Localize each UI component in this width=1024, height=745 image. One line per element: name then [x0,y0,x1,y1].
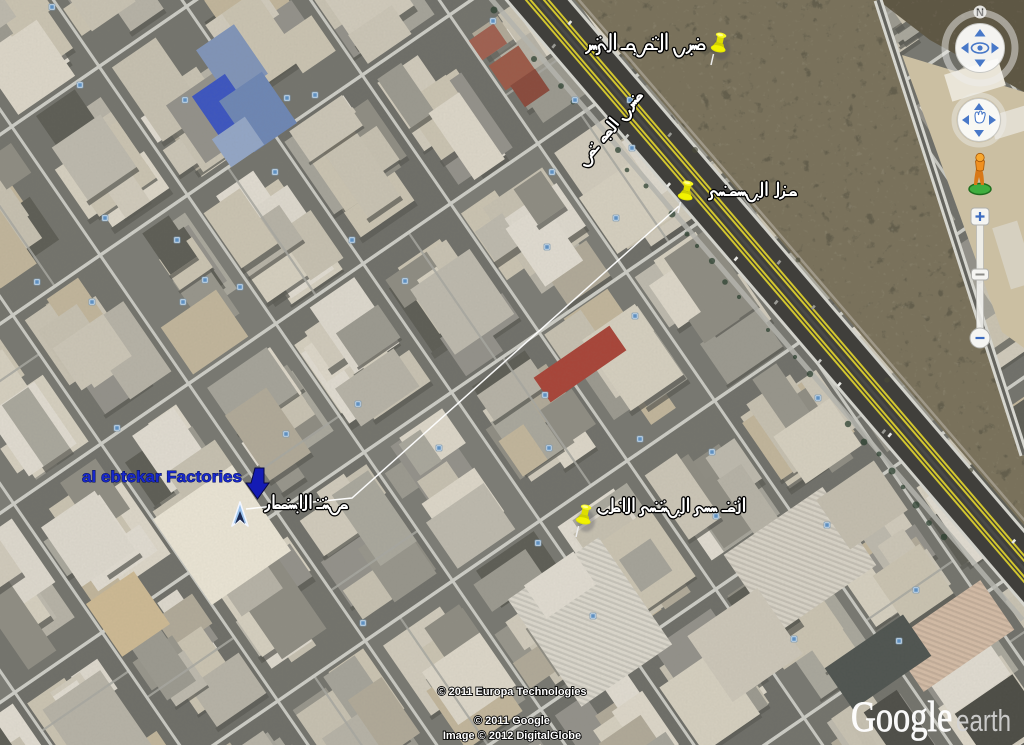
svg-text:earth: earth [956,703,1011,738]
svg-text:Image © 2012 DigitalGlobe: Image © 2012 DigitalGlobe [443,730,581,742]
svg-text:© 2011 Europa Technologies: © 2011 Europa Technologies [437,686,586,698]
svg-text:al ebtekar Factories: al ebtekar Factories [82,469,242,486]
svg-text:© 2011 Google: © 2011 Google [474,715,550,727]
svg-text:Google: Google [851,693,952,740]
